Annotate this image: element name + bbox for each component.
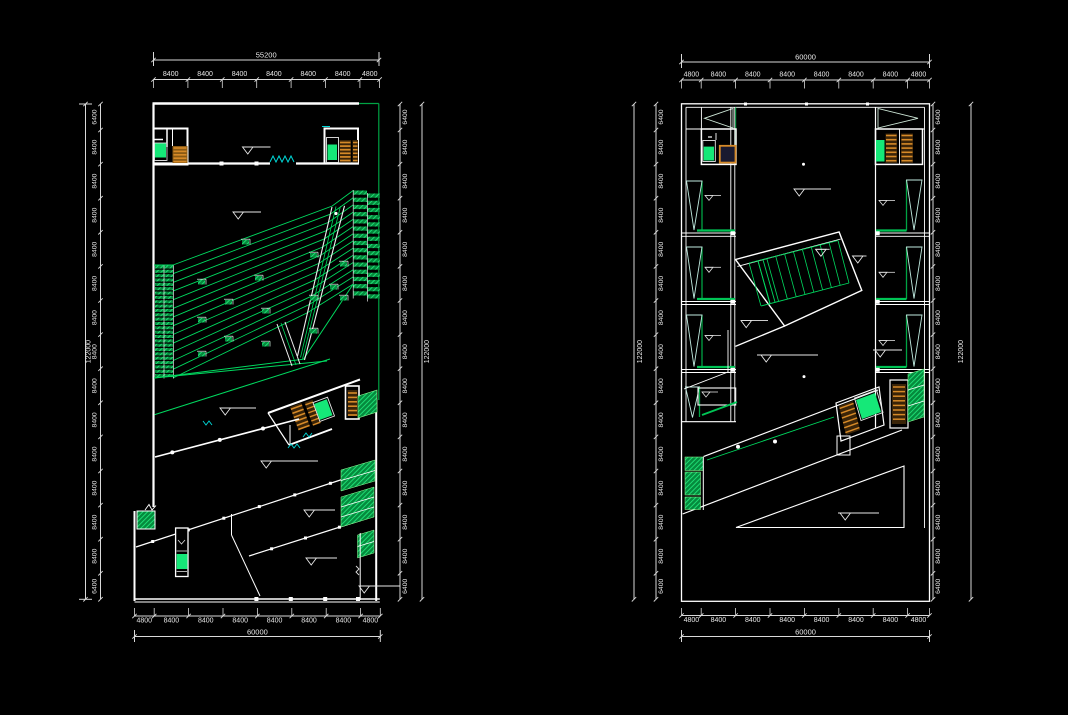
svg-text:8400: 8400 — [658, 480, 665, 495]
svg-text:8400: 8400 — [745, 617, 761, 624]
svg-text:8400: 8400 — [658, 446, 665, 461]
svg-text:8400: 8400 — [402, 378, 409, 393]
svg-text:8400: 8400 — [935, 514, 942, 529]
svg-text:8400: 8400 — [92, 548, 99, 563]
svg-text:8400: 8400 — [814, 617, 830, 624]
svg-text:8400: 8400 — [935, 173, 942, 188]
svg-text:4800: 4800 — [362, 71, 378, 78]
svg-text:8400: 8400 — [402, 446, 409, 461]
svg-text:8400: 8400 — [402, 514, 409, 529]
svg-text:8400: 8400 — [92, 139, 99, 154]
svg-text:8400: 8400 — [935, 139, 942, 154]
svg-text:8400: 8400 — [164, 618, 180, 625]
svg-text:8400: 8400 — [92, 173, 99, 188]
svg-text:8400: 8400 — [402, 139, 409, 154]
svg-text:8400: 8400 — [301, 618, 317, 625]
svg-text:4800: 4800 — [911, 617, 927, 624]
svg-text:8400: 8400 — [658, 548, 665, 563]
svg-text:4800: 4800 — [684, 72, 700, 79]
svg-text:8400: 8400 — [92, 378, 99, 393]
svg-text:8400: 8400 — [883, 617, 899, 624]
svg-text:8400: 8400 — [935, 310, 942, 325]
svg-text:8400: 8400 — [658, 139, 665, 154]
svg-text:8400: 8400 — [92, 412, 99, 427]
svg-text:8400: 8400 — [658, 412, 665, 427]
svg-text:8400: 8400 — [745, 72, 761, 79]
svg-text:8400: 8400 — [658, 514, 665, 529]
svg-text:8400: 8400 — [935, 412, 942, 427]
svg-text:55200: 55200 — [256, 51, 277, 60]
svg-text:8400: 8400 — [658, 207, 665, 222]
svg-text:8400: 8400 — [935, 378, 942, 393]
svg-text:8400: 8400 — [711, 72, 727, 79]
svg-text:8400: 8400 — [402, 276, 409, 291]
svg-text:8400: 8400 — [848, 617, 864, 624]
svg-text:4800: 4800 — [363, 618, 379, 625]
svg-text:122000: 122000 — [958, 340, 965, 363]
svg-text:6400: 6400 — [658, 579, 665, 594]
svg-text:6400: 6400 — [935, 579, 942, 594]
svg-text:8400: 8400 — [935, 276, 942, 291]
svg-text:8400: 8400 — [163, 71, 179, 78]
svg-text:8400: 8400 — [336, 618, 352, 625]
svg-text:8400: 8400 — [935, 344, 942, 359]
svg-text:8400: 8400 — [658, 378, 665, 393]
svg-text:8400: 8400 — [779, 617, 795, 624]
svg-text:8400: 8400 — [402, 173, 409, 188]
svg-text:8400: 8400 — [658, 276, 665, 291]
svg-text:8400: 8400 — [198, 618, 214, 625]
svg-text:8400: 8400 — [92, 344, 99, 359]
svg-text:6400: 6400 — [92, 109, 99, 124]
svg-text:122000: 122000 — [86, 340, 93, 363]
svg-text:4800: 4800 — [911, 72, 927, 79]
svg-text:8400: 8400 — [935, 242, 942, 257]
svg-text:8400: 8400 — [232, 71, 248, 78]
svg-text:8400: 8400 — [658, 173, 665, 188]
svg-text:8400: 8400 — [402, 310, 409, 325]
svg-text:8400: 8400 — [92, 310, 99, 325]
svg-text:8400: 8400 — [92, 446, 99, 461]
svg-text:8400: 8400 — [848, 72, 864, 79]
svg-text:8400: 8400 — [935, 548, 942, 563]
svg-text:6400: 6400 — [658, 109, 665, 124]
svg-text:8400: 8400 — [197, 71, 213, 78]
svg-text:8400: 8400 — [301, 71, 317, 78]
svg-text:8400: 8400 — [335, 71, 351, 78]
svg-text:8400: 8400 — [658, 310, 665, 325]
svg-text:8400: 8400 — [935, 480, 942, 495]
svg-text:122000: 122000 — [424, 340, 431, 363]
svg-text:6400: 6400 — [402, 579, 409, 594]
svg-text:122000: 122000 — [637, 340, 644, 363]
svg-text:4800: 4800 — [137, 618, 153, 625]
svg-text:8400: 8400 — [92, 480, 99, 495]
svg-text:8400: 8400 — [658, 242, 665, 257]
svg-text:8400: 8400 — [935, 207, 942, 222]
svg-text:8400: 8400 — [92, 242, 99, 257]
svg-text:8400: 8400 — [402, 344, 409, 359]
svg-text:8400: 8400 — [267, 618, 283, 625]
svg-text:8400: 8400 — [402, 207, 409, 222]
svg-text:8400: 8400 — [232, 618, 248, 625]
svg-text:60000: 60000 — [795, 53, 816, 62]
svg-text:8400: 8400 — [883, 72, 899, 79]
svg-text:60000: 60000 — [795, 628, 816, 637]
svg-text:8400: 8400 — [658, 344, 665, 359]
svg-text:8400: 8400 — [402, 412, 409, 427]
svg-text:8400: 8400 — [779, 72, 795, 79]
svg-text:8400: 8400 — [92, 207, 99, 222]
svg-text:6400: 6400 — [402, 109, 409, 124]
svg-text:8400: 8400 — [92, 276, 99, 291]
svg-text:8400: 8400 — [402, 548, 409, 563]
svg-text:6400: 6400 — [935, 109, 942, 124]
svg-text:8400: 8400 — [711, 617, 727, 624]
svg-text:4800: 4800 — [684, 617, 700, 624]
svg-text:8400: 8400 — [402, 242, 409, 257]
svg-text:8400: 8400 — [814, 72, 830, 79]
svg-text:8400: 8400 — [266, 71, 282, 78]
svg-text:8400: 8400 — [92, 514, 99, 529]
svg-text:8400: 8400 — [402, 480, 409, 495]
svg-text:60000: 60000 — [247, 628, 268, 637]
svg-text:8400: 8400 — [935, 446, 942, 461]
svg-text:6400: 6400 — [92, 579, 99, 594]
